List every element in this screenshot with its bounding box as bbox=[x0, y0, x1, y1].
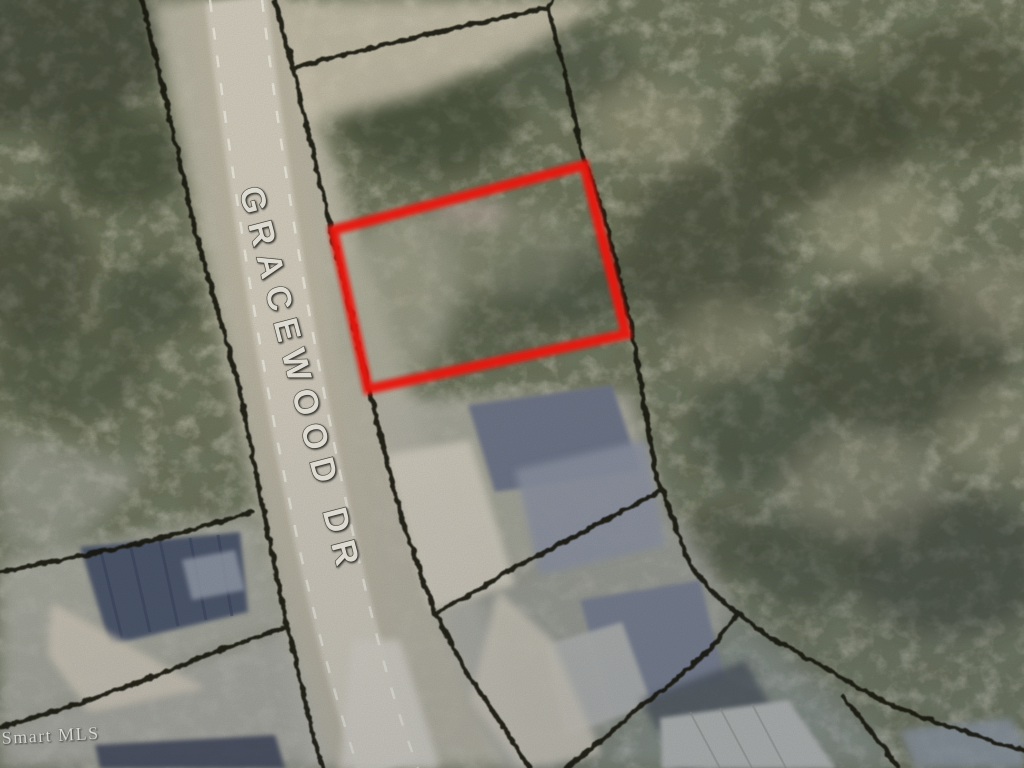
blue-shade-tint bbox=[0, 0, 1024, 768]
aerial-map-view: GRACEWOOD DR Smart MLS bbox=[0, 0, 1024, 768]
aerial-map-canvas: GRACEWOOD DR Smart MLS bbox=[0, 0, 1024, 768]
